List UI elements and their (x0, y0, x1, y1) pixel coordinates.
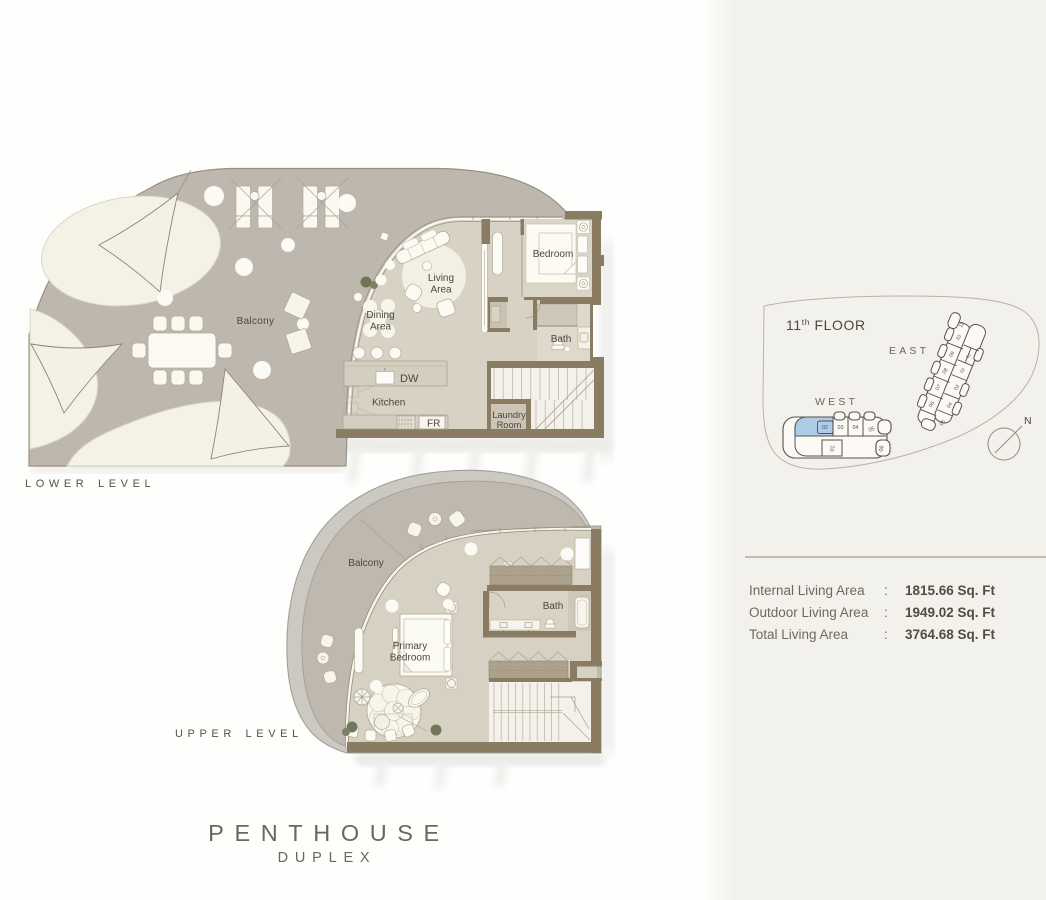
svg-text:1949.02 Sq. Ft: 1949.02 Sq. Ft (905, 605, 996, 620)
svg-text:02: 02 (822, 425, 828, 431)
svg-text:N: N (1024, 415, 1032, 427)
svg-text:WEST: WEST (815, 396, 858, 408)
svg-text:Balcony: Balcony (348, 558, 384, 569)
svg-text:UPPER LEVEL: UPPER LEVEL (175, 728, 303, 740)
svg-text:Dining: Dining (366, 310, 394, 321)
svg-text:Living: Living (428, 273, 454, 284)
svg-text:1815.66 Sq. Ft: 1815.66 Sq. Ft (905, 583, 996, 598)
svg-text:Area: Area (370, 322, 392, 333)
svg-text:Room: Room (497, 420, 522, 430)
svg-text:Bedroom: Bedroom (533, 249, 574, 260)
svg-text:Kitchen: Kitchen (372, 398, 405, 409)
svg-text:06: 06 (878, 445, 885, 452)
svg-text:Balcony: Balcony (237, 316, 275, 327)
svg-text:11th FLOOR: 11th FLOOR (786, 317, 866, 333)
svg-text:PENTHOUSE: PENTHOUSE (208, 820, 450, 846)
svg-text:EAST: EAST (889, 345, 929, 357)
svg-text:Bath: Bath (543, 601, 564, 612)
svg-text:FR: FR (427, 419, 440, 430)
svg-text:3764.68 Sq. Ft: 3764.68 Sq. Ft (905, 627, 996, 642)
svg-text::: : (884, 583, 888, 598)
svg-text:DUPLEX: DUPLEX (278, 850, 377, 866)
svg-text:04: 04 (852, 425, 858, 431)
svg-text::: : (884, 605, 888, 620)
svg-text:DW: DW (400, 373, 419, 385)
svg-text:Primary: Primary (393, 641, 427, 652)
svg-text:LOWER LEVEL: LOWER LEVEL (25, 478, 155, 490)
svg-text:Internal Living Area: Internal Living Area (749, 583, 865, 598)
svg-text:Laundry: Laundry (492, 410, 526, 420)
svg-text:01: 01 (829, 445, 836, 452)
svg-text:03: 03 (837, 425, 843, 431)
svg-text:Bath: Bath (551, 334, 572, 345)
svg-text:Bedroom: Bedroom (390, 653, 431, 664)
svg-text::: : (884, 627, 888, 642)
svg-text:Outdoor Living Area: Outdoor Living Area (749, 605, 869, 620)
svg-text:Area: Area (430, 285, 452, 296)
svg-text:Total Living Area: Total Living Area (749, 627, 849, 642)
